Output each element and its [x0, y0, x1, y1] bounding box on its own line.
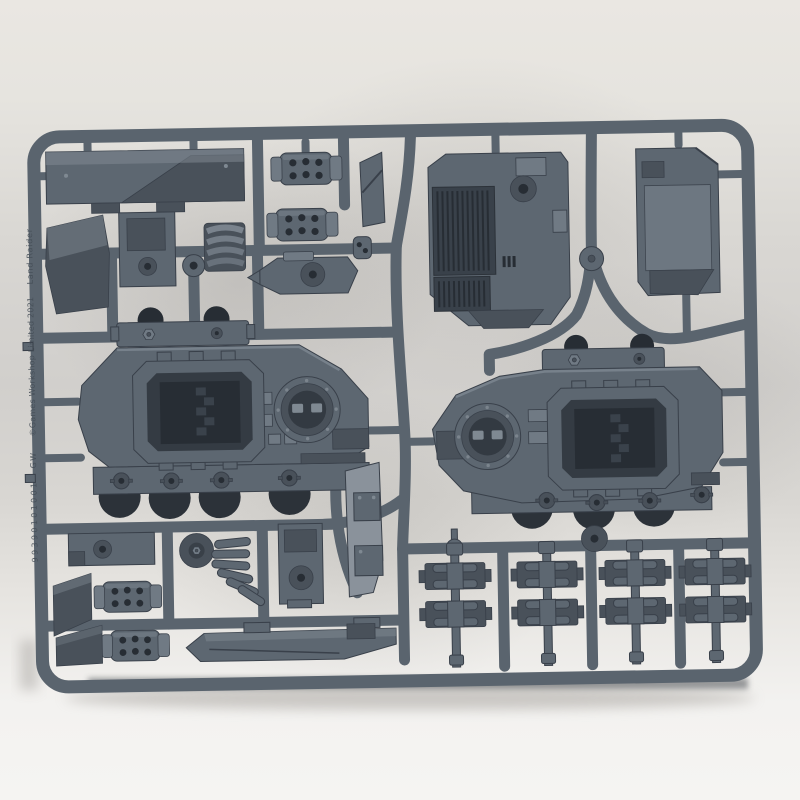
bolted-rail-right — [542, 333, 665, 371]
track-link-cluster-1 — [419, 542, 493, 667]
radiator-grille-lower — [434, 276, 491, 311]
exhaust-drum-1 — [271, 152, 343, 185]
engine-radiator-deck — [428, 152, 571, 329]
mount-plate-with-boss — [68, 532, 155, 565]
corner-shadow — [20, 640, 38, 690]
track-link-cluster-2 — [510, 541, 584, 666]
round-hatch-right — [454, 403, 521, 470]
hatch-access-panel — [119, 212, 176, 287]
armour-wedge-block — [45, 215, 111, 314]
flat-armour-panel — [636, 147, 721, 295]
track-link-cluster-4 — [678, 538, 752, 663]
bolted-rail-left — [110, 306, 255, 348]
door-frame-left — [132, 350, 265, 470]
pulley-disc — [179, 533, 214, 568]
small-ribbed-cylinder — [353, 236, 371, 258]
molded-maker-initials: GW — [29, 452, 38, 468]
exhaust-drum-2 — [267, 208, 339, 241]
curved-shield-segments-top — [204, 223, 246, 272]
sprue-photo: 99390101001 GW ©Games Workshop Limited 2… — [0, 0, 800, 800]
sprue: 99390101001 GW ©Games Workshop Limited 2… — [19, 125, 756, 688]
panel-with-pivot-boss — [278, 523, 323, 608]
track-link-cluster-3 — [598, 539, 672, 664]
runner-disc-node — [581, 525, 607, 551]
ejector-tab — [25, 474, 35, 482]
door-frame-right — [547, 379, 680, 497]
molded-part-code: 99390101001 — [29, 482, 39, 562]
stepped-mounting-bracket — [345, 462, 383, 597]
exhaust-drum-4 — [102, 630, 170, 662]
pivot-bracket — [247, 251, 358, 295]
photo-stage: 99390101001 GW ©Games Workshop Limited 2… — [0, 0, 800, 800]
angled-side-panel — [360, 152, 385, 226]
hull-roof-panel — [46, 149, 245, 214]
round-hatch-left — [274, 376, 341, 443]
exhaust-drum-3 — [94, 581, 162, 613]
radiator-grille-upper — [432, 186, 496, 275]
molded-product-name: Land Raider — [25, 228, 35, 284]
hull-side-panel-right — [432, 366, 725, 532]
small-dark-plate — [347, 623, 375, 638]
spinner-cap — [182, 254, 204, 276]
hull-side-panel-left — [77, 344, 370, 521]
